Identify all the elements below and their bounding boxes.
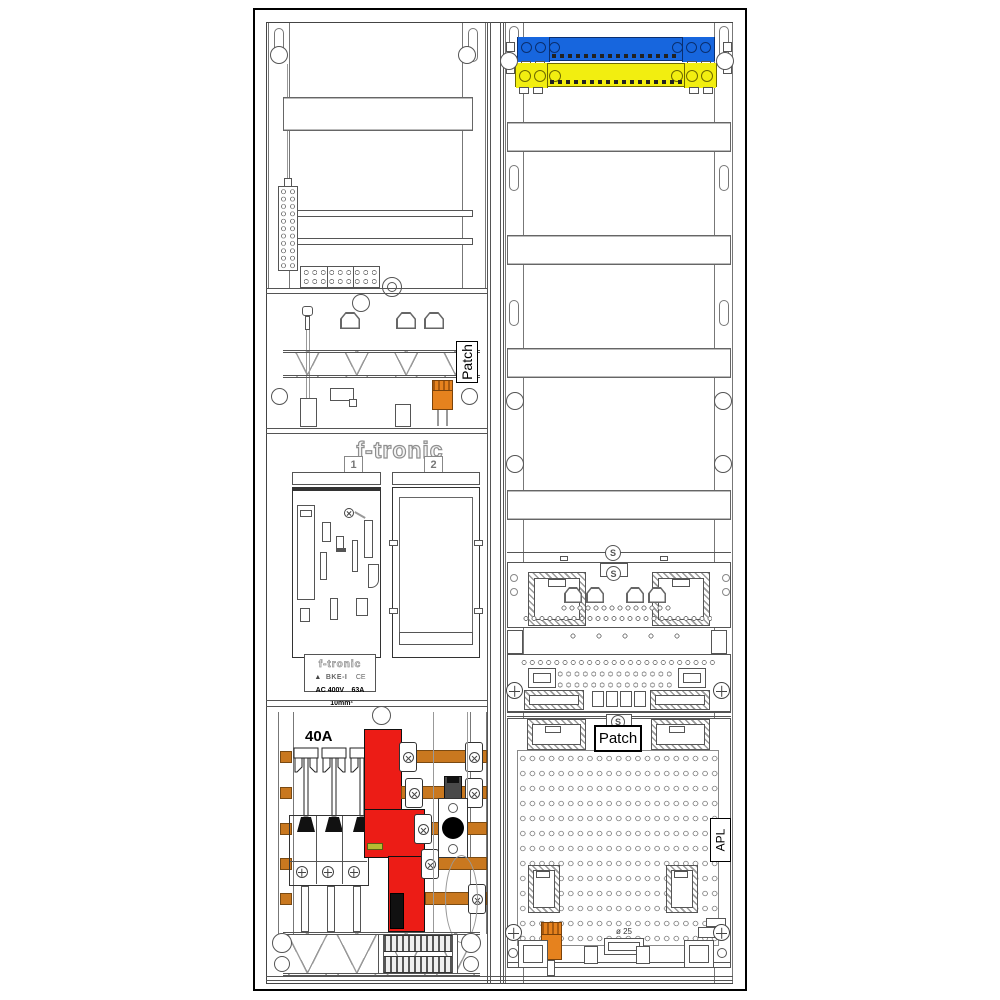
apl-label: APL [710,818,731,862]
cutout-slot [536,871,550,878]
meter-part [322,522,331,542]
mounting-hole [461,388,478,405]
wire-line [467,712,468,798]
screw-icon [713,924,730,941]
rail-slot [719,165,729,191]
comb-terminal-row [383,935,453,952]
vertical-terminal-strip [278,186,298,271]
orange-connector [432,390,453,410]
din-rail-panel [507,490,731,520]
small-cutout [584,946,598,964]
sls-switch-upper [364,729,402,811]
section-divider [266,433,487,434]
screw-icon [506,682,523,699]
terminal-hole [448,803,458,813]
section-divider [507,712,731,713]
corner-bracket [684,940,714,968]
column-divider-line [490,22,491,984]
busbar-support [280,787,292,799]
busbar-clamp [414,814,432,844]
cable-lug-hole [442,817,464,839]
meter-part [356,598,368,616]
meter-field-1-number: 1 [344,456,363,473]
section-divider [266,700,487,701]
din-rail-panel [283,97,473,131]
mounting-hole [272,933,292,953]
meter-part [364,520,373,558]
column-divider-line [500,22,501,984]
mounting-hole [271,388,288,405]
device-cutout [524,690,584,710]
seal-label [367,843,383,850]
mounting-hole [461,933,481,953]
cable-grommet-inner [387,282,397,292]
busbar-clamp [421,849,439,879]
meter-field-top-bar [292,472,381,485]
comb-end-cap [378,934,384,974]
terminal-holes [521,42,560,53]
pe-busbar-yellow [515,63,717,87]
screw-icon [722,588,730,596]
mounting-hole [714,455,732,473]
ventilation-holes [522,614,712,623]
small-cutout [606,691,618,707]
screw-icon [344,508,354,518]
busbar-support [280,751,292,763]
busbar-clamp [399,742,417,772]
side-slot [528,668,556,688]
screw-icon: S [605,545,621,561]
bke-voltage: AC 400V [316,687,344,694]
connector-leg [437,410,439,426]
mounting-hole [508,948,518,958]
cable-duct-truss [283,350,480,378]
grommet-note: ø 25 [604,927,644,937]
comb-terminal-row [383,956,453,973]
ventilation-holes [520,658,716,667]
cutout-slot [545,726,561,733]
small-cutout [634,691,646,707]
screw-icon [713,682,730,699]
screw-icon [722,574,730,582]
bke-current: 63A [352,687,365,694]
panel-tick [560,556,568,561]
breaker-stem [327,886,335,932]
frame-tick [474,608,483,614]
bolt-shaft [305,316,310,330]
terminal-separator [353,267,354,287]
section-divider [266,428,487,429]
mounting-hole [717,948,727,958]
din-rail-panel [507,235,731,265]
mounting-hole [500,52,518,70]
screw-icon [296,866,308,878]
thin-rail [283,210,473,217]
sls-switch-window [390,893,404,929]
breaker-rating-label: 40A [305,728,350,746]
corner-bracket [518,940,548,968]
terminal-holes [279,188,297,269]
mounting-hole [716,52,734,70]
horizontal-terminal-strip [300,266,380,288]
mount-stub [395,404,411,427]
busbar-tab [519,87,529,94]
frame-tick [474,540,483,546]
side-bracket [507,630,523,654]
busbar-tab [533,87,543,94]
busbar-support [280,893,292,905]
mounting-hole [506,392,524,410]
screw-icon [510,574,518,582]
screw-icon [322,866,334,878]
screw-icon [510,588,518,596]
bolt-head [302,306,313,316]
meter-field-2-bottom-bar [399,632,473,645]
notch-hole [372,706,391,725]
patch-label-left-text: Patch [459,344,475,380]
busbar-tab [703,87,713,94]
ventilation-holes [560,604,672,612]
meter-part [300,608,310,622]
perforated-plate [517,750,719,946]
cabinet-bottom-edge [266,976,733,977]
screw-icon [505,924,522,941]
cutout-slot [674,871,688,878]
bke-rating-plate: f-tronic ▲ BKE-I CE AC 400V 63A 10mm² [304,654,376,692]
screw-icon: S [606,566,621,581]
meter-part [368,564,379,588]
connector-leg [547,960,555,976]
apl-label-text: APL [714,829,728,852]
terminal-holes [672,42,711,53]
busbar-tab [689,87,699,94]
cutout-slot [669,726,685,733]
patch-label-right-text: Patch [599,730,637,747]
device-cutout [651,719,710,750]
column-divider-line [487,22,488,984]
mounting-hole [270,46,288,64]
side-bracket [711,630,727,654]
busbar-teeth [550,80,682,84]
terminal-separator [327,267,328,287]
meter-part [300,510,312,517]
device-cutout [650,690,710,710]
drawing-canvas: Patch f-tronic 1 2 f-tronic ▲ [0,0,1000,1000]
small-cutout [636,946,650,964]
ventilation-holes [556,681,674,689]
busbar-clip [506,42,515,52]
mount-stub [300,398,317,427]
connector-leg [446,410,448,426]
terminal-holes [302,268,378,286]
din-rail-panel [507,348,731,378]
busbar-teeth [552,54,680,58]
frame-tick [389,540,398,546]
thin-rail [283,238,473,245]
rail-slot [509,300,519,326]
patch-label-right: Patch [594,725,642,752]
meter-part-dark [336,548,346,552]
mounting-hole [463,956,479,972]
cutout-slot [548,579,566,587]
small-cutout [592,691,604,707]
screw-icon [348,866,360,878]
breaker-stem [301,886,309,932]
meter-part [320,552,327,580]
meter-field-2-number: 2 [424,456,443,473]
dark-terminal-clamp [444,776,462,800]
small-cutout [620,691,632,707]
ventilation-holes [556,670,674,678]
busbar-clip [723,42,732,52]
mounting-hole [506,455,524,473]
mounting-hole [714,392,732,410]
ventilation-holes [560,632,690,640]
meter-field-2-inner-frame [399,497,473,645]
cabinet-bottom-edge [266,980,733,981]
f-tronic-triangle-icon: ▲ [314,674,321,681]
patch-label-left: Patch [456,341,478,383]
section-divider [266,293,487,294]
panel-tick [660,556,668,561]
breaker-stem [353,886,361,932]
meter-part [330,598,338,620]
wire-line [433,712,434,932]
notch-hole [352,294,370,312]
din-rail-panel [507,122,731,152]
rail-slot [509,165,519,191]
device-cutout [527,719,586,750]
mounting-hole [458,46,476,64]
comb-end-cap [452,934,458,974]
column-divider-line [503,22,504,984]
small-device-tab [349,399,357,407]
rail-slot [719,300,729,326]
neutral-busbar-blue [517,37,715,61]
section-divider [266,288,487,289]
terminal-hole [448,844,458,854]
wire-loop [445,855,478,943]
meter-part [297,505,315,600]
cutout-slot [672,579,690,587]
ce-mark: CE [356,674,366,681]
meter-part [352,540,358,572]
busbar-clamp [405,778,423,808]
side-slot [678,668,706,688]
frame-tick [389,608,398,614]
meter-field-top-bar [392,472,480,485]
mounting-hole [274,956,290,972]
